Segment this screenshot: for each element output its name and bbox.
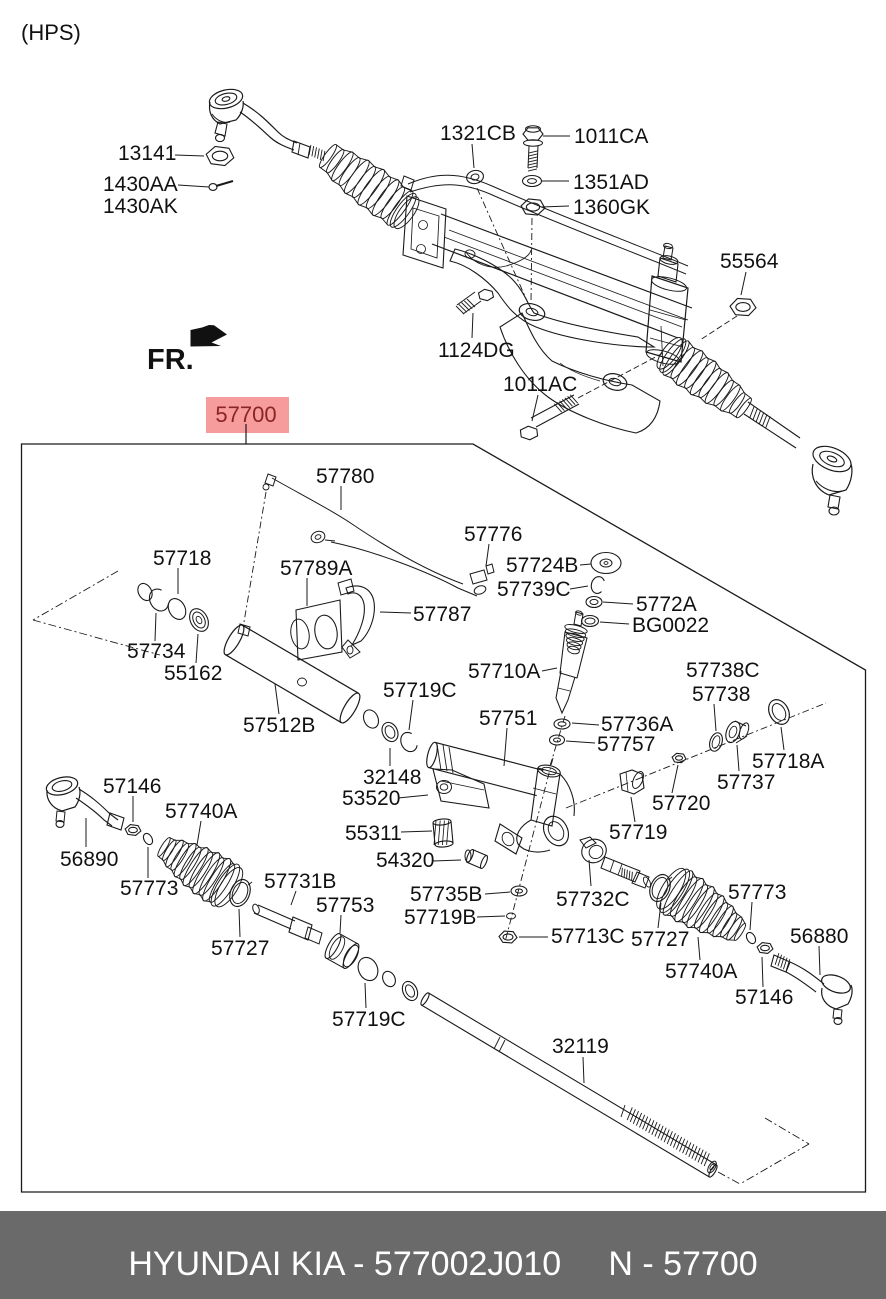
svg-text:57737: 57737 bbox=[717, 771, 775, 794]
svg-text:55162: 55162 bbox=[164, 662, 222, 685]
svg-text:53520: 53520 bbox=[342, 787, 400, 810]
svg-text:57732C: 57732C bbox=[556, 888, 630, 911]
svg-text:57789A: 57789A bbox=[280, 557, 352, 580]
svg-text:57719C: 57719C bbox=[332, 1008, 406, 1031]
svg-text:57727: 57727 bbox=[631, 928, 689, 951]
svg-text:57713C: 57713C bbox=[551, 925, 625, 948]
svg-text:1011CA: 1011CA bbox=[574, 125, 648, 148]
svg-text:5772A: 5772A bbox=[636, 593, 697, 616]
svg-text:57512B: 57512B bbox=[243, 714, 315, 737]
svg-text:(HPS): (HPS) bbox=[21, 20, 81, 45]
svg-text:57735B: 57735B bbox=[410, 883, 482, 906]
svg-text:57787: 57787 bbox=[413, 603, 471, 626]
svg-text:32119: 32119 bbox=[552, 1035, 609, 1058]
svg-text:56880: 56880 bbox=[790, 925, 848, 948]
svg-text:1360GK: 1360GK bbox=[573, 196, 650, 219]
svg-text:1430AK: 1430AK bbox=[103, 195, 178, 218]
svg-text:57146: 57146 bbox=[735, 986, 793, 1009]
svg-text:54320: 54320 bbox=[376, 849, 434, 872]
svg-text:57146: 57146 bbox=[103, 775, 161, 798]
svg-text:57724B: 57724B bbox=[506, 554, 578, 577]
svg-text:57740A: 57740A bbox=[665, 960, 737, 983]
svg-text:57734: 57734 bbox=[127, 640, 186, 663]
svg-text:1351AD: 1351AD bbox=[573, 171, 649, 194]
svg-text:57700: 57700 bbox=[215, 402, 276, 427]
svg-text:57719B: 57719B bbox=[404, 906, 476, 929]
svg-text:57740A: 57740A bbox=[165, 800, 237, 823]
svg-text:57718: 57718 bbox=[153, 547, 211, 570]
svg-text:57719: 57719 bbox=[609, 821, 667, 844]
svg-text:13141: 13141 bbox=[118, 142, 176, 165]
svg-text:1321CB: 1321CB bbox=[440, 122, 516, 145]
svg-text:55311: 55311 bbox=[345, 822, 402, 845]
svg-text:BG0022: BG0022 bbox=[632, 614, 709, 637]
svg-text:57776: 57776 bbox=[464, 523, 522, 546]
svg-text:57751: 57751 bbox=[479, 707, 537, 730]
svg-text:32148: 32148 bbox=[363, 766, 421, 789]
svg-text:55564: 55564 bbox=[720, 250, 779, 273]
svg-text:57738: 57738 bbox=[692, 683, 750, 706]
svg-text:57720: 57720 bbox=[652, 792, 710, 815]
svg-text:57719C: 57719C bbox=[383, 679, 457, 702]
svg-text:57753: 57753 bbox=[316, 894, 374, 917]
svg-text:HYUNDAI KIA - 577002J010 N: HYUNDAI KIA - 577002J010 N - 57700 bbox=[128, 1245, 757, 1283]
svg-text:57731B: 57731B bbox=[264, 870, 336, 893]
svg-text:57773: 57773 bbox=[120, 877, 178, 900]
svg-text:57727: 57727 bbox=[211, 937, 269, 960]
svg-text:57739C: 57739C bbox=[497, 578, 571, 601]
svg-text:57718A: 57718A bbox=[752, 750, 824, 773]
svg-text:57710A: 57710A bbox=[468, 660, 540, 683]
svg-text:1430AA: 1430AA bbox=[103, 173, 178, 196]
svg-text:FR.: FR. bbox=[147, 344, 194, 376]
svg-text:57773: 57773 bbox=[728, 881, 786, 904]
svg-text:1011AC: 1011AC bbox=[503, 373, 577, 396]
svg-text:1124DG: 1124DG bbox=[438, 339, 515, 362]
svg-text:56890: 56890 bbox=[60, 848, 118, 871]
svg-text:57780: 57780 bbox=[316, 465, 374, 488]
svg-text:57738C: 57738C bbox=[686, 659, 760, 682]
svg-text:57757: 57757 bbox=[597, 733, 655, 756]
